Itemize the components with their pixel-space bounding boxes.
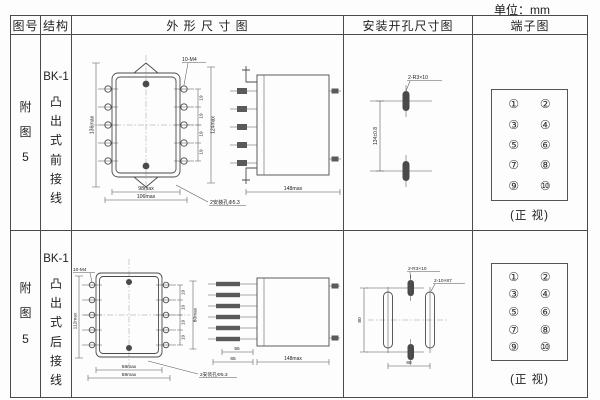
pin-number: ② [540, 97, 551, 111]
pin-number: ③ [508, 118, 519, 132]
pin-number: ④ [540, 118, 551, 132]
dim-right-height-label: 124max [211, 116, 217, 134]
mounting-cell-row1: 134±0.8 2-R3×10 [344, 35, 473, 231]
dim-width-inner-label: 68max [122, 364, 137, 370]
dim-pitch-label: 19 [181, 305, 186, 311]
front-view-drawing: 10-M4 112max 19 19 19 19 80max 68max 88m… [73, 259, 238, 381]
dim-holes-label: 2安装孔Φ5.3 [200, 371, 228, 378]
pin-number: ⑥ [540, 305, 551, 319]
fig-no-row1: 附图5 [11, 35, 41, 231]
dim-height-label: 112max [73, 312, 79, 329]
dim-pitch-label: 19 [199, 131, 204, 137]
pin-number: ② [540, 270, 551, 284]
dim-pitch-label: 19 [199, 95, 204, 101]
pin-number: ⑩ [540, 340, 551, 354]
dim-screw-label: 10-M4 [182, 57, 197, 63]
dim-depth-label: 148max [284, 186, 303, 192]
pin-number: ③ [508, 287, 519, 301]
pin-number: ⑥ [540, 138, 551, 152]
dim-slots-label: 2-R3×10 [408, 75, 428, 81]
terminal-cell-row1: ① ② ③ ④ ⑤ ⑥ ⑦ ⑧ ⑨ ⑩ (正 视) [473, 35, 587, 231]
outline-cell-row1: 136max 10-M4 19 19 19 19 124max 98max 10… [72, 35, 344, 231]
document-page: 单位：mm 图号 结构 外 形 尺 寸 图 安装开孔尺寸图 端子图 附图5 BK… [0, 0, 600, 400]
dim-width-inner-label: 98max [138, 186, 154, 192]
dim-pitch-label: 19 [181, 320, 186, 326]
dim-width-outer-label: 88max [122, 372, 137, 378]
pin-number: ⑤ [508, 305, 519, 319]
pin-number: ⑤ [508, 138, 519, 152]
dim-pitch-label: 19 [181, 335, 186, 341]
terminal-box: ① ② ③ ④ ⑤ ⑥ ⑦ ⑧ ⑨ ⑩ [491, 89, 568, 201]
header-outline: 外 形 尺 寸 图 [72, 16, 344, 35]
side-view-drawing: 148max [230, 66, 341, 195]
header-fig-no: 图号 [11, 16, 41, 35]
header-terminal: 端子图 [473, 16, 587, 35]
view-label: (正 视) [473, 371, 586, 387]
header-mounting: 安装开孔尺寸图 [344, 16, 473, 35]
dim-right-height-label: 80max [193, 307, 199, 322]
header-structure: 结构 [41, 16, 72, 35]
structure-row1: BK-1 凸出式前接线 [41, 35, 72, 231]
spec-table: 图号 结构 外 形 尺 寸 图 安装开孔尺寸图 端子图 附图5 BK-1 凸出式… [10, 15, 588, 398]
pin-number: ⑨ [508, 340, 519, 354]
pin-number: ⑧ [540, 323, 551, 337]
dim-height-label: 80 [357, 317, 363, 323]
side-view-drawing: 55 65 148max [208, 278, 340, 365]
outline-cell-row2: 10-M4 112max 19 19 19 19 80max 68max 88m… [72, 231, 344, 397]
dim-height-label: 136max [90, 115, 96, 134]
dim-span-label: 134±0.8 [373, 127, 379, 145]
dim-slots-small-label: 2-R3×10 [408, 266, 427, 272]
outline-drawing-row1: 136max 10-M4 19 19 19 19 124max 98max 10… [72, 35, 344, 231]
dim-slots-long-label: 2-10×87 [434, 278, 452, 284]
dim-a-label: 55 [234, 346, 240, 352]
pin-number: ⑦ [508, 323, 519, 337]
pin-number: ⑩ [540, 179, 551, 193]
structure-label: 凸出式前接线 [49, 93, 63, 208]
dim-screw-label: 10-M4 [73, 267, 87, 273]
dim-width-label: 68 [406, 360, 412, 366]
pin-number: ④ [540, 287, 551, 301]
terminal-box: ① ② ③ ④ ⑤ ⑥ ⑦ ⑧ ⑨ ⑩ [491, 263, 568, 361]
mounting-drawing-row2: 80 68 2-R3×10 2-10×87 [344, 231, 473, 397]
front-view-drawing: 136max 10-M4 19 19 19 19 124max 98max 10… [90, 55, 247, 206]
pin-number: ⑦ [508, 158, 519, 172]
dim-pitch-label: 19 [199, 113, 204, 119]
mounting-cell-row2: 80 68 2-R3×10 2-10×87 [344, 231, 473, 397]
view-label: (正 视) [473, 207, 586, 223]
mounting-drawing-row1: 134±0.8 2-R3×10 [344, 35, 473, 231]
outline-drawing-row2: 10-M4 112max 19 19 19 19 80max 68max 88m… [72, 231, 344, 397]
pin-number: ① [508, 97, 519, 111]
pin-number: ① [508, 270, 519, 284]
fig-no-row2: 附图5 [11, 231, 41, 397]
pin-number: ⑨ [508, 179, 519, 193]
structure-label: 凸出式后接线 [49, 275, 63, 390]
dim-depth-label: 148max [284, 356, 302, 362]
terminal-cell-row2: ① ② ③ ④ ⑤ ⑥ ⑦ ⑧ ⑨ ⑩ (正 视) [473, 231, 587, 397]
dim-width-outer-label: 106max [137, 194, 156, 200]
dim-b-label: 65 [230, 356, 236, 362]
dim-pitch-label: 19 [199, 149, 204, 155]
structure-row2: BK-1 凸出式后接线 [41, 231, 72, 397]
model-label: BK-1 [43, 253, 69, 265]
model-label: BK-1 [43, 71, 69, 83]
pin-number: ⑧ [540, 158, 551, 172]
dim-pitch-label: 19 [181, 290, 186, 296]
dim-holes-label: 2安装孔Φ5.3 [210, 198, 240, 206]
